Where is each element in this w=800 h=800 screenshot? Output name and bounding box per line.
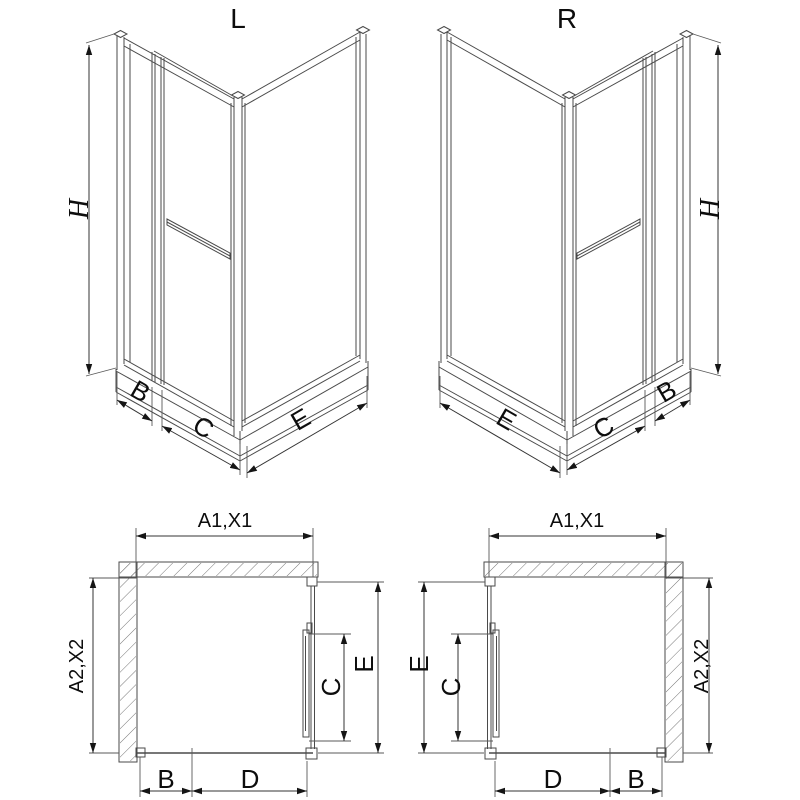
dim-label-a2: A2,X2 xyxy=(691,639,713,693)
plan-left-labels: A1,X1 A2,X2 E C B D xyxy=(66,510,379,794)
dim-label-a1: A1,X1 xyxy=(550,510,604,532)
dim-label-e: E xyxy=(285,402,315,437)
iso-view-left-structure xyxy=(86,27,370,479)
dim-label-e: E xyxy=(404,655,434,672)
dim-label-a2: A2,X2 xyxy=(66,639,88,693)
hatch-top-wall-right-plan xyxy=(485,563,682,576)
dim-label-c: C xyxy=(316,678,346,697)
hatch-side-wall-right-plan xyxy=(666,563,682,761)
dim-label-e: E xyxy=(349,655,379,672)
dim-label-d: D xyxy=(544,764,563,794)
dim-label-c: C xyxy=(188,410,219,445)
dim-label-a1: A1,X1 xyxy=(198,510,252,532)
iso-view-right-structure xyxy=(438,27,722,479)
dim-label-b: B xyxy=(157,764,174,794)
view-title-right: R xyxy=(557,3,577,34)
hatch-side-wall-left-plan xyxy=(120,563,136,761)
hatch-top-wall-left-plan xyxy=(120,563,317,576)
dim-label-e: E xyxy=(491,402,521,437)
wall-hatching xyxy=(120,563,682,761)
shower-enclosure-diagram: L H B C E R H E C B A1,X1 A2,X2 E C B D … xyxy=(0,0,800,800)
dim-label-b: B xyxy=(627,764,644,794)
dim-label-h: H xyxy=(64,197,95,220)
dim-label-c: C xyxy=(588,410,619,445)
technical-drawing-sheet: L H B C E R H E C B A1,X1 A2,X2 E C B D … xyxy=(0,0,800,800)
dim-label-d: D xyxy=(241,764,260,794)
dim-label-c: C xyxy=(436,678,466,697)
dim-label-h: H xyxy=(695,197,726,220)
iso-left-labels: L H B C E xyxy=(64,3,316,445)
view-title-left: L xyxy=(230,3,246,34)
